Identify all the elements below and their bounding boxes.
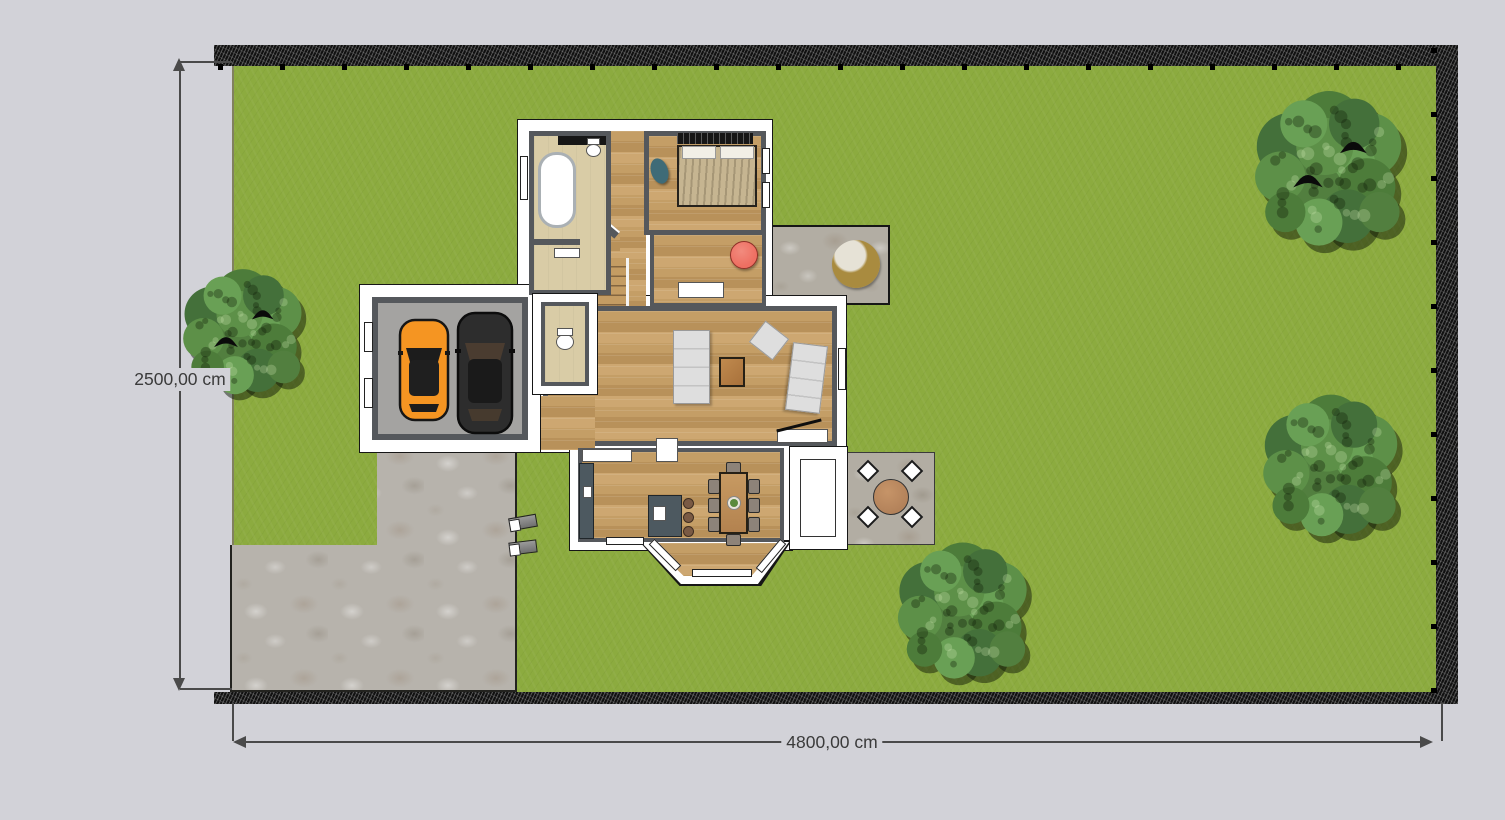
wc-toilet-tank	[557, 328, 573, 336]
dining-chair[interactable]	[748, 498, 760, 513]
dining-chair[interactable]	[748, 517, 760, 532]
dining-chair[interactable]	[726, 534, 741, 546]
arrow-down-icon	[173, 678, 185, 691]
bathroom-window[interactable]	[520, 156, 528, 200]
wc-room[interactable]	[541, 302, 589, 386]
bedroom-window-blinds[interactable]	[677, 133, 753, 144]
round-lounger[interactable]	[832, 240, 880, 288]
dimension-extension	[1441, 703, 1443, 741]
kitchen-counter[interactable]	[579, 463, 594, 539]
sofa-left[interactable]	[673, 330, 710, 404]
arrow-right-icon	[1420, 736, 1433, 748]
site-plan-canvas: 2500,00 cm 4800,00 cm	[0, 0, 1505, 820]
bathroom[interactable]	[529, 131, 611, 295]
porch-rail	[800, 459, 836, 537]
bath-divider-wall	[534, 239, 580, 245]
bathtub[interactable]	[538, 152, 576, 228]
bed[interactable]	[677, 145, 757, 207]
kitchen-sink	[583, 486, 592, 498]
patio-dining-terrace[interactable]	[845, 452, 935, 545]
patio-chair[interactable]	[857, 460, 880, 483]
kitchen-window[interactable]	[606, 537, 644, 545]
patio-chair[interactable]	[857, 506, 880, 529]
dimension-extension	[180, 688, 232, 690]
bar-stool[interactable]	[683, 512, 694, 523]
garage-window[interactable]	[364, 322, 373, 352]
garage-window[interactable]	[364, 378, 373, 408]
arrow-left-icon	[233, 736, 246, 748]
sideboard[interactable]	[678, 282, 724, 298]
bedroom[interactable]	[644, 131, 766, 235]
lot-width-label: 4800,00 cm	[781, 731, 882, 754]
bird-silhouette	[219, 339, 233, 343]
red-armchair[interactable]	[730, 241, 758, 269]
black-car[interactable]	[455, 311, 515, 435]
patio-top-right[interactable]	[770, 225, 890, 305]
toilet-tank	[587, 138, 600, 145]
study-room[interactable]	[650, 231, 766, 307]
patio-table[interactable]	[873, 479, 909, 515]
sink[interactable]	[554, 248, 580, 258]
beanbag[interactable]	[647, 156, 671, 186]
orange-car[interactable]	[398, 318, 450, 422]
kitchen-cabinet[interactable]	[582, 449, 632, 462]
tv-console[interactable]	[777, 429, 828, 443]
pillow	[682, 146, 716, 159]
kitchen-island[interactable]	[648, 495, 682, 537]
coffee-table[interactable]	[719, 357, 745, 387]
dining-table[interactable]	[719, 472, 748, 534]
dining-chair[interactable]	[748, 479, 760, 494]
living-window[interactable]	[838, 348, 846, 390]
fence-bottom[interactable]	[214, 692, 1458, 704]
fence-top[interactable]	[214, 45, 1458, 66]
bay-window-frame[interactable]	[692, 569, 752, 577]
dimension-extension	[180, 61, 232, 63]
coffee-machine[interactable]	[653, 506, 666, 521]
centerpiece-plant	[730, 499, 738, 507]
entry-floor	[541, 396, 595, 450]
porch[interactable]	[790, 447, 847, 549]
arrow-up-icon	[173, 58, 185, 71]
fence-posts-right	[1431, 48, 1437, 700]
bar-stool[interactable]	[683, 498, 694, 509]
bedroom-window[interactable]	[762, 182, 770, 208]
fence-right[interactable]	[1436, 45, 1458, 703]
bedroom-window[interactable]	[762, 148, 770, 174]
bar-stool[interactable]	[683, 526, 694, 537]
fence-posts-top	[218, 64, 1458, 70]
tall-cabinet[interactable]	[656, 438, 678, 462]
wc-toilet[interactable]	[556, 334, 574, 350]
toilet[interactable]	[586, 144, 601, 157]
patio-chair[interactable]	[901, 460, 924, 483]
pillow	[720, 146, 754, 159]
lot-height-label: 2500,00 cm	[129, 368, 230, 391]
